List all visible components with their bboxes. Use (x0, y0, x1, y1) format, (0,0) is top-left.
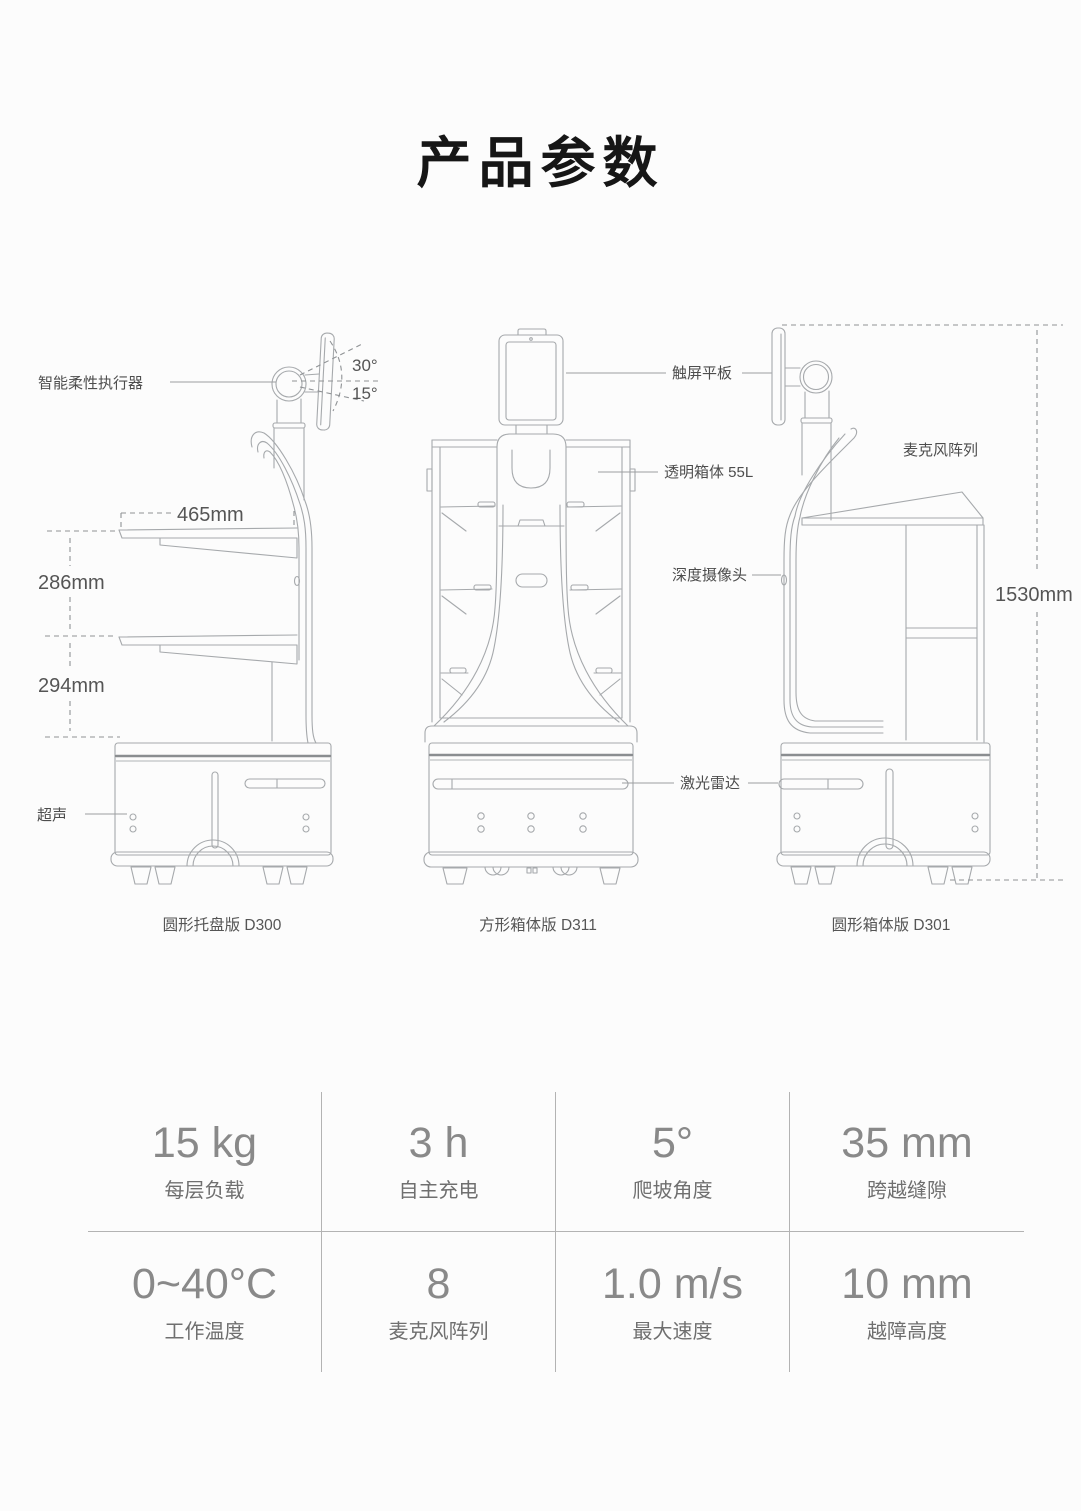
spec-charging: 3 h 自主充电 (322, 1092, 556, 1232)
spec-label: 爬坡角度 (633, 1181, 713, 1201)
robot-diagrams: 30° 15° 智能柔性执行器 465mm (0, 300, 1081, 960)
spec-label: 最大速度 (633, 1322, 713, 1342)
lidar-label: 激光雷达 (680, 775, 740, 792)
caption-d301: 圆形箱体版 D301 (832, 916, 951, 934)
spec-payload: 15 kg 每层负载 (88, 1092, 322, 1232)
spec-label: 麦克风阵列 (389, 1322, 489, 1342)
actuator-label: 智能柔性执行器 (38, 374, 143, 392)
spec-climb-angle: 5° 爬坡角度 (556, 1092, 790, 1232)
angle-down-label: 15° (352, 384, 378, 403)
tray-dimensions (45, 531, 120, 737)
ultrasonic-label: 超声 (37, 806, 67, 824)
spec-label: 跨越缝隙 (867, 1181, 947, 1201)
angle-up-label: 30° (352, 356, 378, 375)
page-title: 产品参数 (0, 118, 1081, 198)
spec-obstacle-height: 10 mm 越障高度 (790, 1232, 1024, 1372)
diagram-svg: 30° 15° 智能柔性执行器 465mm (0, 300, 1081, 960)
dim-width-label: 465mm (177, 504, 244, 526)
caption-d311: 方形箱体版 D311 (479, 916, 597, 934)
spec-temperature: 0~40°C 工作温度 (88, 1232, 322, 1372)
mic-array-label: 麦克风阵列 (903, 442, 978, 459)
caption-d300: 圆形托盘版 D300 (163, 915, 282, 934)
spec-label: 工作温度 (165, 1322, 245, 1342)
component-callouts: 触屏平板 透明箱体 55L 深度摄像头 激光雷达 (566, 364, 781, 792)
spec-value: 35 mm (841, 1122, 972, 1165)
transparent-box-label: 透明箱体 55L (664, 464, 753, 481)
spec-value: 8 (427, 1263, 451, 1306)
spec-value: 5° (652, 1122, 693, 1165)
spec-value: 10 mm (841, 1263, 972, 1306)
spec-value: 1.0 m/s (602, 1263, 743, 1306)
product-spec-page: 产品参数 (0, 0, 1081, 1511)
spec-value: 15 kg (152, 1122, 257, 1165)
spec-max-speed: 1.0 m/s 最大速度 (556, 1232, 790, 1372)
robot-d300-drawing: 30° 15° 智能柔性执行器 465mm (37, 333, 378, 934)
touchscreen-label: 触屏平板 (672, 364, 732, 382)
depth-camera-label: 深度摄像头 (672, 567, 747, 584)
spec-label: 越障高度 (867, 1322, 947, 1342)
robot-d311-drawing: 方形箱体版 D311 (424, 329, 638, 934)
spec-gap-crossing: 35 mm 跨越缝隙 (790, 1092, 1024, 1232)
spec-value: 0~40°C (132, 1263, 277, 1306)
spec-grid: 15 kg 每层负载 3 h 自主充电 5° 爬坡角度 35 mm 跨越缝隙 0… (88, 1092, 1024, 1372)
spec-label: 每层负载 (165, 1181, 245, 1201)
spec-mic-array: 8 麦克风阵列 (322, 1232, 556, 1372)
dim-tray1-label: 286mm (38, 572, 105, 594)
spec-value: 3 h (409, 1122, 469, 1165)
dim-height-label: 1530mm (995, 584, 1073, 606)
robot-d301-drawing: 麦克风阵列 1530mm 圆形箱体版 D301 (772, 325, 1073, 934)
dim-tray2-label: 294mm (38, 675, 105, 697)
spec-label: 自主充电 (399, 1181, 479, 1201)
